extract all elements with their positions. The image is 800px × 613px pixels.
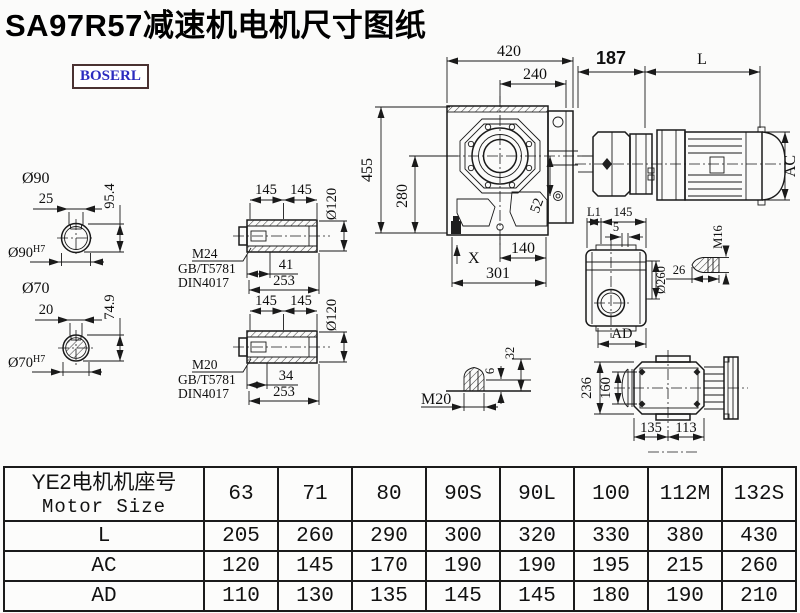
dim-label-145a: 145 bbox=[255, 182, 277, 198]
shaft-section-70: Ø70 20 74.9 Ø70H7 bbox=[8, 280, 124, 376]
cell-AD-3: 145 bbox=[426, 581, 500, 611]
dim-label-26: 26 bbox=[673, 263, 686, 277]
dim-label-gb-a: GB/T5781 bbox=[178, 261, 236, 276]
drawing-page: SA97R57减速机电机尺寸图纸 BOSERL Ø90 25 95.4 bbox=[0, 0, 800, 613]
dim-label-253b: 253 bbox=[273, 384, 295, 400]
motor-size-label-en: Motor Size bbox=[5, 495, 203, 519]
dim-label-gb-b: GB/T5781 bbox=[178, 372, 236, 387]
table-row-AC: AC 120 145 170 190 190 195 215 260 bbox=[4, 551, 796, 581]
dim-label-bore70: Ø70H7 bbox=[8, 354, 45, 371]
dim-label-240: 240 bbox=[523, 66, 547, 83]
dim-label-95-4: 95.4 bbox=[102, 183, 118, 209]
hollow-shaft-detail-a: 145 145 Ø120 M24 GB/T5781 DIN4017 41 25 bbox=[178, 182, 347, 294]
col-80: 80 bbox=[352, 467, 426, 521]
dim-label-AC: AC bbox=[782, 155, 799, 177]
dim-label-455: 455 bbox=[359, 158, 376, 182]
dim-label-187: 187 bbox=[596, 48, 626, 68]
table-header-motor-size: YE2电机机座号 Motor Size bbox=[4, 467, 204, 521]
col-132s: 132S bbox=[722, 467, 796, 521]
col-63: 63 bbox=[204, 467, 278, 521]
cell-AD-1: 130 bbox=[278, 581, 352, 611]
cell-AC-7: 260 bbox=[722, 551, 796, 581]
dim-label-74-9: 74.9 bbox=[102, 294, 118, 319]
cell-L-2: 290 bbox=[352, 521, 426, 551]
dim-label-5: 5 bbox=[613, 220, 619, 234]
cell-AC-6: 215 bbox=[648, 551, 722, 581]
m20-bolt-detail: 6 32 M20 bbox=[421, 347, 531, 411]
dim-label-160: 160 bbox=[598, 377, 614, 399]
dim-label-bore90: Ø90H7 bbox=[8, 244, 45, 261]
gearbox-rear-view: 236 160 135 113 bbox=[579, 350, 748, 452]
dim-label-41: 41 bbox=[279, 257, 294, 273]
dim-label-113: 113 bbox=[675, 420, 696, 436]
cell-AD-0: 110 bbox=[204, 581, 278, 611]
dim-label-M16: M16 bbox=[711, 225, 725, 249]
dim-label-key25: 25 bbox=[39, 191, 54, 207]
cell-L-4: 320 bbox=[500, 521, 574, 551]
dim-label-34: 34 bbox=[279, 368, 294, 384]
dim-label-280: 280 bbox=[394, 184, 411, 208]
hollow-shaft-detail-b: 145 145 Ø120 M20 GB/T5781 DIN4017 34 25 bbox=[178, 293, 347, 405]
gearbox-front-view: 420 240 455 280 52 140 301 X bbox=[359, 43, 592, 287]
cell-L-7: 430 bbox=[722, 521, 796, 551]
dim-label-135: 135 bbox=[640, 420, 662, 436]
dim-label-52: 52 bbox=[527, 196, 547, 215]
dim-label-m20b: M20 bbox=[192, 357, 218, 372]
dim-label-din-a: DIN4017 bbox=[178, 275, 229, 290]
col-112m: 112M bbox=[648, 467, 722, 521]
cell-L-6: 380 bbox=[648, 521, 722, 551]
cell-AD-7: 210 bbox=[722, 581, 796, 611]
dim-label-301: 301 bbox=[486, 265, 510, 282]
dim-label-420: 420 bbox=[497, 43, 521, 60]
table-header-row: YE2电机机座号 Motor Size 63 71 80 90S 90L 100… bbox=[4, 467, 796, 521]
dim-label-145b: 145 bbox=[290, 182, 312, 198]
cell-L-0: 205 bbox=[204, 521, 278, 551]
oil-plug-x-marker: X bbox=[468, 250, 480, 267]
cell-AC-3: 190 bbox=[426, 551, 500, 581]
cell-AD-4: 145 bbox=[500, 581, 574, 611]
cell-AC-1: 145 bbox=[278, 551, 352, 581]
dim-label-145d: 145 bbox=[290, 293, 312, 309]
row-label-AC: AC bbox=[4, 551, 204, 581]
dim-label-253a: 253 bbox=[273, 273, 295, 289]
gearbox-top-view: L1 145 5 Ø260 AD bbox=[586, 205, 668, 348]
dim-label-145c: 145 bbox=[255, 293, 277, 309]
col-100: 100 bbox=[574, 467, 648, 521]
cell-AD-5: 180 bbox=[574, 581, 648, 611]
cell-L-1: 260 bbox=[278, 521, 352, 551]
dim-label-32: 32 bbox=[503, 347, 517, 360]
dim-label-dia260: Ø260 bbox=[654, 266, 668, 294]
col-90l: 90L bbox=[500, 467, 574, 521]
table-row-L: L 205 260 290 300 320 330 380 430 bbox=[4, 521, 796, 551]
col-90s: 90S bbox=[426, 467, 500, 521]
cell-AC-0: 120 bbox=[204, 551, 278, 581]
cell-AD-6: 190 bbox=[648, 581, 722, 611]
cell-AC-5: 195 bbox=[574, 551, 648, 581]
dim-label-236: 236 bbox=[579, 377, 595, 399]
dim-label-145e: 145 bbox=[614, 205, 633, 219]
dim-label-M20: M20 bbox=[421, 391, 451, 408]
shaft-section-90: Ø90 25 95.4 Ø90H7 bbox=[8, 170, 124, 266]
dim-label-dia70: Ø70 bbox=[22, 280, 50, 297]
m16-bolt-detail: M16 26 bbox=[666, 225, 729, 284]
cell-L-3: 300 bbox=[426, 521, 500, 551]
cell-L-5: 330 bbox=[574, 521, 648, 551]
dim-label-6: 6 bbox=[483, 368, 497, 374]
dim-label-L1: L1 bbox=[587, 205, 601, 219]
dim-label-key20: 20 bbox=[39, 302, 54, 318]
dim-label-dia120a: Ø120 bbox=[324, 188, 340, 220]
cell-AD-2: 135 bbox=[352, 581, 426, 611]
col-71: 71 bbox=[278, 467, 352, 521]
dim-label-m24: M24 bbox=[192, 246, 218, 261]
motor-size-label-cn: YE2电机机座号 bbox=[5, 470, 203, 495]
dim-label-140: 140 bbox=[511, 240, 535, 257]
dim-label-AD: AD bbox=[612, 326, 633, 342]
dim-label-dia120b: Ø120 bbox=[324, 299, 340, 331]
cell-AC-2: 170 bbox=[352, 551, 426, 581]
dim-label-dia90: Ø90 bbox=[22, 170, 50, 187]
cell-AC-4: 190 bbox=[500, 551, 574, 581]
motor-size-table: YE2电机机座号 Motor Size 63 71 80 90S 90L 100… bbox=[3, 466, 797, 612]
table-row-AD: AD 110 130 135 145 145 180 190 210 bbox=[4, 581, 796, 611]
dim-label-L: L bbox=[697, 51, 707, 68]
dim-label-din-b: DIN4017 bbox=[178, 386, 229, 401]
motor-side-view: 187 L AC bbox=[575, 48, 799, 205]
row-label-AD: AD bbox=[4, 581, 204, 611]
row-label-L: L bbox=[4, 521, 204, 551]
